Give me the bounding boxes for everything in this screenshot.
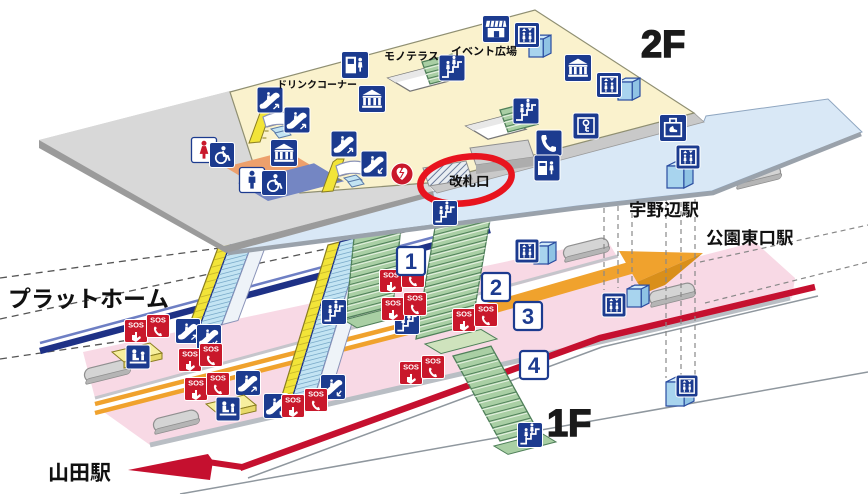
svg-text:SOS: SOS <box>403 363 419 372</box>
svg-text:1: 1 <box>405 249 417 274</box>
svg-text:SOS: SOS <box>188 379 204 388</box>
svg-text:SOS: SOS <box>425 357 441 366</box>
svg-text:SOS: SOS <box>210 374 226 383</box>
svg-text:SOS: SOS <box>203 345 219 354</box>
svg-text:SOS: SOS <box>182 350 198 359</box>
svg-text:SOS: SOS <box>456 310 472 319</box>
svg-text:2: 2 <box>490 275 502 300</box>
svg-text:SOS: SOS <box>285 396 301 405</box>
svg-text:SOS: SOS <box>308 390 324 399</box>
svg-text:SOS: SOS <box>128 321 144 330</box>
svg-text:2F: 2F <box>641 24 685 66</box>
svg-text:SOS: SOS <box>478 305 494 314</box>
svg-text:4: 4 <box>528 353 541 378</box>
svg-text:SOS: SOS <box>150 316 166 325</box>
svg-text:1F: 1F <box>547 403 591 445</box>
svg-text:3: 3 <box>522 304 534 329</box>
svg-text:SOS: SOS <box>385 299 401 308</box>
svg-text:SOS: SOS <box>407 294 423 303</box>
